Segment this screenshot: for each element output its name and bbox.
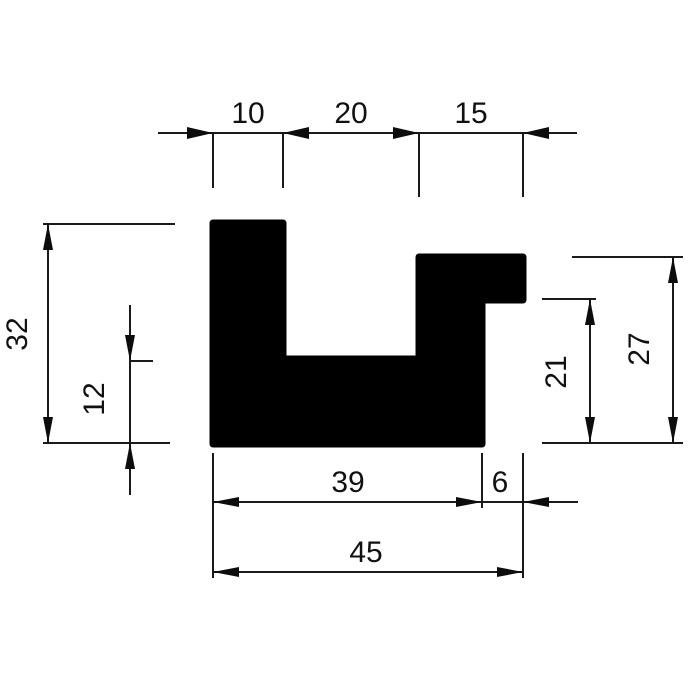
dim-label-right-flange-width: 15 — [454, 97, 487, 130]
u-channel-profile-shape — [213, 223, 523, 444]
arrowhead-left-icon — [283, 127, 309, 139]
arrowhead-down-icon — [125, 335, 135, 361]
dim-label-overall-height-left: 32 — [1, 317, 34, 350]
arrowhead-left-icon — [523, 497, 549, 507]
arrowhead-up-icon — [125, 443, 135, 469]
dimension-group-base-thickness: 12 — [78, 305, 153, 495]
arrowhead-up-icon — [43, 224, 53, 250]
dim-label-overall-height-right: 27 — [623, 332, 656, 365]
technical-drawing-canvas: 10 20 15 32 12 21 — [0, 0, 700, 700]
arrowhead-down-icon — [43, 417, 53, 443]
arrowhead-down-icon — [585, 417, 595, 443]
arrowhead-up-icon — [585, 299, 595, 325]
dimension-group-right-height: 27 — [542, 257, 683, 443]
arrowhead-right-icon — [497, 567, 523, 577]
dim-label-total-width: 45 — [349, 536, 382, 569]
arrowhead-right-icon — [393, 127, 419, 139]
arrowhead-left-icon — [213, 497, 239, 507]
arrowhead-down-icon — [668, 417, 678, 443]
dim-label-left-flange-width: 10 — [231, 97, 264, 130]
arrowhead-left-icon — [213, 567, 239, 577]
arrowhead-left-icon — [523, 127, 549, 139]
arrowhead-up-icon — [668, 257, 678, 283]
dim-label-base-thickness: 12 — [78, 382, 111, 415]
dim-label-channel-width: 20 — [334, 97, 367, 130]
dimension-group-total-width: 45 — [213, 536, 523, 577]
dimension-group-bottom-chain: 39 6 — [213, 453, 578, 578]
dim-label-notch-width: 6 — [492, 466, 509, 499]
profile-dimension-drawing: 10 20 15 32 12 21 — [0, 0, 700, 700]
dimension-group-step-height: 21 — [540, 299, 596, 443]
dim-label-step-height: 21 — [540, 355, 573, 388]
arrowhead-right-icon — [187, 127, 213, 139]
dimension-group-top: 10 20 15 — [158, 97, 577, 197]
dim-label-body-width: 39 — [331, 466, 364, 499]
arrowhead-right-icon — [456, 497, 482, 507]
